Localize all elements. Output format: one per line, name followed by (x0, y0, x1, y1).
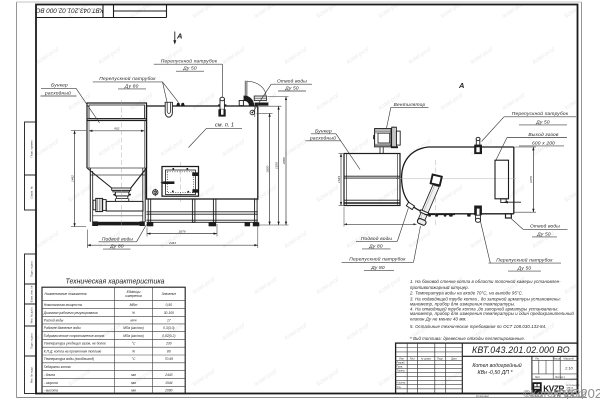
svg-text:1678: 1678 (179, 229, 186, 233)
svg-text:Бункер: Бункер (51, 83, 68, 89)
svg-text:Отвод воды: Отвод воды (530, 224, 560, 230)
svg-text:Подп. и дата: Подп. и дата (30, 333, 34, 349)
svg-text:№ докум.: № докум. (421, 357, 432, 360)
svg-text:80: 80 (167, 349, 171, 353)
svg-text:Габариты котла: Габариты котла (44, 365, 71, 369)
svg-text:600 х 200: 600 х 200 (532, 140, 555, 146)
svg-text:17: 17 (167, 318, 171, 322)
svg-text:Ду 80: Ду 80 (124, 83, 139, 89)
svg-text:°С: °С (132, 357, 136, 361)
svg-text:Гидравлическое сопротивление к: Гидравлическое сопротивление котла (44, 334, 105, 338)
svg-text:Инв. № дубл.: Инв. № дубл. (30, 306, 34, 323)
svg-text:расходный: расходный (309, 134, 336, 141)
svg-text:МВт: МВт (130, 303, 138, 307)
svg-text:Расход воды: Расход воды (44, 318, 64, 322)
svg-text:КВТ.043.201.02.000 ВО: КВТ.043.201.02.000 ВО (35, 7, 103, 14)
svg-text:Ду 80: Ду 80 (109, 244, 124, 250)
svg-text:Выход газов: Выход газов (528, 132, 558, 138)
svg-text:Т.контр.: Т.контр. (397, 370, 406, 373)
svg-text:Н.контр.: Н.контр. (397, 382, 407, 385)
svg-text:KVG2021: KVG2021 (553, 386, 600, 400)
svg-text:противопожарный штуцер.: противопожарный штуцер. (410, 285, 469, 290)
svg-text:2080: 2080 (282, 157, 286, 165)
svg-text:мм: мм (131, 388, 136, 392)
svg-text:Инв. № подл.: Инв. № подл. (30, 366, 34, 383)
svg-text:1820: 1820 (265, 165, 269, 172)
svg-text:Утв.: Утв. (397, 386, 402, 389)
svg-text:Перв. примен.: Перв. примен. (30, 139, 34, 157)
svg-text:Значение: Значение (162, 292, 177, 296)
svg-text:Температура воды (вход/выход): Температура воды (вход/выход) (44, 357, 94, 361)
svg-text:Копировал: Копировал (476, 394, 489, 398)
svg-text:Рабочее давление воды: Рабочее давление воды (44, 326, 82, 330)
svg-text:А: А (176, 32, 182, 41)
svg-text:2443: 2443 (164, 373, 173, 377)
svg-text:5. Остальные технические треб: 5. Остальные технические требования по О… (410, 324, 546, 329)
svg-text:902: 902 (114, 127, 119, 131)
svg-text:Перепускной патрубок: Перепускной патрубок (161, 58, 218, 65)
svg-text:Лист: Лист (535, 376, 541, 379)
svg-text:расходный: расходный (44, 90, 71, 97)
svg-text:30-100: 30-100 (164, 311, 174, 315)
svg-text:Бункер: Бункер (315, 128, 332, 134)
svg-text:Масса: Масса (553, 358, 561, 361)
svg-text:МПа (кгс/см²): МПа (кгс/см²) (123, 326, 144, 330)
svg-text:Ду 80: Ду 80 (370, 265, 385, 271)
svg-text:%: % (132, 311, 135, 315)
svg-text:Масштаб: Масштаб (564, 358, 575, 361)
svg-text:м³/ч: м³/ч (131, 318, 137, 322)
svg-text:Ду 50: Ду 50 (535, 119, 550, 125)
svg-text:2080: 2080 (164, 388, 173, 392)
svg-text:Изм: Изм (399, 357, 404, 360)
svg-text:КВТ.043.201.02.000 ВО: КВТ.043.201.02.000 ВО (472, 345, 570, 355)
svg-text:- длина: - длина (44, 373, 55, 377)
svg-text:клапан Ду не менее 40 мм.: клапан Ду не менее 40 мм. (410, 316, 467, 321)
svg-text:1920: 1920 (274, 162, 278, 169)
svg-text:1. На боковой стенке котла в: 1. На боковой стенке котла в области топ… (410, 279, 561, 284)
svg-text:мм: мм (131, 373, 136, 377)
svg-text:Дата: Дата (451, 357, 457, 360)
svg-text:Ду 80: Ду 80 (368, 243, 383, 249)
svg-text:К.П.Д. котла на проектном топл: К.П.Д. котла на проектном топливе (44, 349, 102, 353)
svg-text:см. п. 1: см. п. 1 (215, 122, 234, 128)
svg-text:Пров.: Пров. (397, 366, 404, 369)
svg-text:Подп.: Подп. (437, 357, 444, 360)
svg-text:- ширина: - ширина (44, 381, 58, 385)
svg-text:Перепускной патрубок: Перепускной патрубок (512, 110, 569, 117)
svg-text:Ду 50: Ду 50 (536, 231, 551, 237)
svg-text:2. Температура воды на входе: 2. Температура воды на входе 70°С, на вы… (409, 290, 523, 295)
svg-text:Перепускной патрубок: Перепускной патрубок (99, 75, 156, 82)
svg-text:МПа (кгс/см²): МПа (кгс/см²) (123, 334, 144, 338)
svg-text:2443: 2443 (168, 241, 176, 245)
svg-text:Ду 50: Ду 50 (284, 86, 299, 92)
svg-text:Перепускной патрубок: Перепускной патрубок (496, 256, 553, 263)
svg-text:Котел водогрейный: Котел водогрейный (472, 362, 521, 369)
svg-text:70-95: 70-95 (165, 357, 174, 361)
svg-text:КВн -0,50 ДП *: КВн -0,50 ДП * (478, 370, 514, 376)
svg-text:мм: мм (131, 381, 136, 385)
svg-text:Техническая характеристика: Техническая характеристика (65, 279, 164, 286)
svg-text:Разраб.: Разраб. (397, 362, 406, 365)
svg-text:Перепускной патрубок: Перепускной патрубок (349, 256, 406, 263)
svg-text:Взам. инв. №: Взам. инв. № (30, 286, 34, 303)
svg-text:230: 230 (165, 342, 172, 346)
svg-text:1544: 1544 (337, 176, 341, 183)
svg-text:Подвод воды: Подвод воды (361, 236, 393, 242)
svg-text:Номинальная мощность: Номинальная мощность (44, 303, 83, 307)
svg-text:Отвод воды: Отвод воды (277, 79, 307, 85)
svg-text:Ду 50: Ду 50 (182, 66, 197, 72)
svg-text:Подвод воды: Подвод воды (102, 236, 134, 242)
svg-text:0,02(0,2): 0,02(0,2) (162, 334, 175, 338)
svg-text:Температура уходящих газов, не: Температура уходящих газов, не более (44, 342, 106, 346)
svg-text:Подп. и дата: Подп. и дата (30, 261, 34, 277)
svg-text:1070: 1070 (529, 176, 533, 183)
svg-text:%: % (132, 349, 135, 353)
svg-text:Вентилятор: Вентилятор (394, 102, 426, 108)
svg-text:°С: °С (132, 342, 136, 346)
svg-text:А: А (458, 81, 464, 90)
svg-text:Лит.: Лит. (535, 358, 540, 361)
svg-text:Справ. №: Справ. № (30, 186, 34, 198)
svg-text:Ду 50: Ду 50 (517, 266, 532, 272)
svg-text:* Вид топлива: древесные отх: * Вид топлива: древесные отходы пеллетир… (410, 336, 525, 341)
svg-text:0,3(3,0): 0,3(3,0) (163, 326, 174, 330)
svg-text:измерения: измерения (125, 294, 142, 298)
svg-text:- высота: - высота (44, 388, 58, 392)
svg-text:1:10: 1:10 (565, 365, 574, 370)
svg-text:Наименование показателя: Наименование показателя (45, 292, 87, 296)
svg-text:Листов 1: Листов 1 (555, 376, 565, 379)
svg-text:Диапазон рабочего регулировани: Диапазон рабочего регулирования (43, 311, 98, 315)
svg-text:Лист: Лист (410, 357, 416, 360)
svg-text:1462: 1462 (70, 175, 74, 182)
svg-text:0,50: 0,50 (166, 303, 173, 307)
svg-text:1544: 1544 (165, 381, 173, 385)
